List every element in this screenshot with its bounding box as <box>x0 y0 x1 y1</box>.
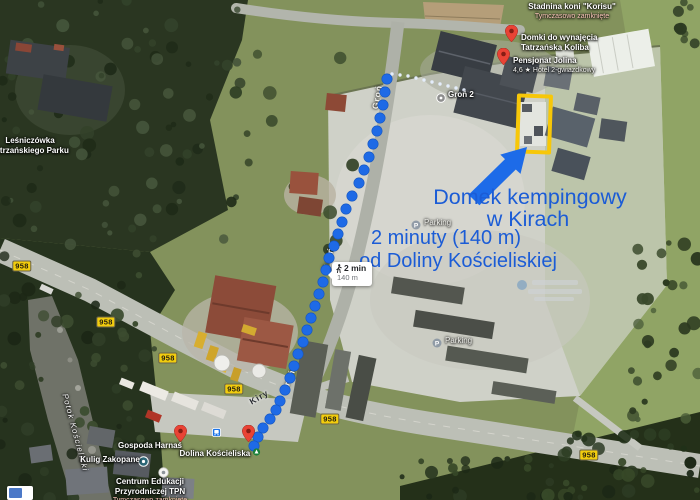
annotations-layer: Domek kempingowy w Kirach 2 minuty (140 … <box>0 0 700 500</box>
map-control-image <box>9 488 22 498</box>
tooltip-duration: 2 min <box>344 264 366 273</box>
distance-caption-line2: od Doliny Kościeliskiej <box>359 250 557 273</box>
tooltip-distance: 140 m <box>337 273 372 282</box>
distance-caption-line1: 2 minuty (140 m) <box>371 227 521 250</box>
satellite-map[interactable]: GrońGrońGrońKiry958958958958958958 Stadn… <box>0 0 700 500</box>
arrow-overlay <box>0 0 700 500</box>
walking-icon <box>336 264 342 273</box>
map-control-partial[interactable] <box>7 486 33 500</box>
route-duration-tooltip[interactable]: 2 min 140 m <box>332 262 372 286</box>
